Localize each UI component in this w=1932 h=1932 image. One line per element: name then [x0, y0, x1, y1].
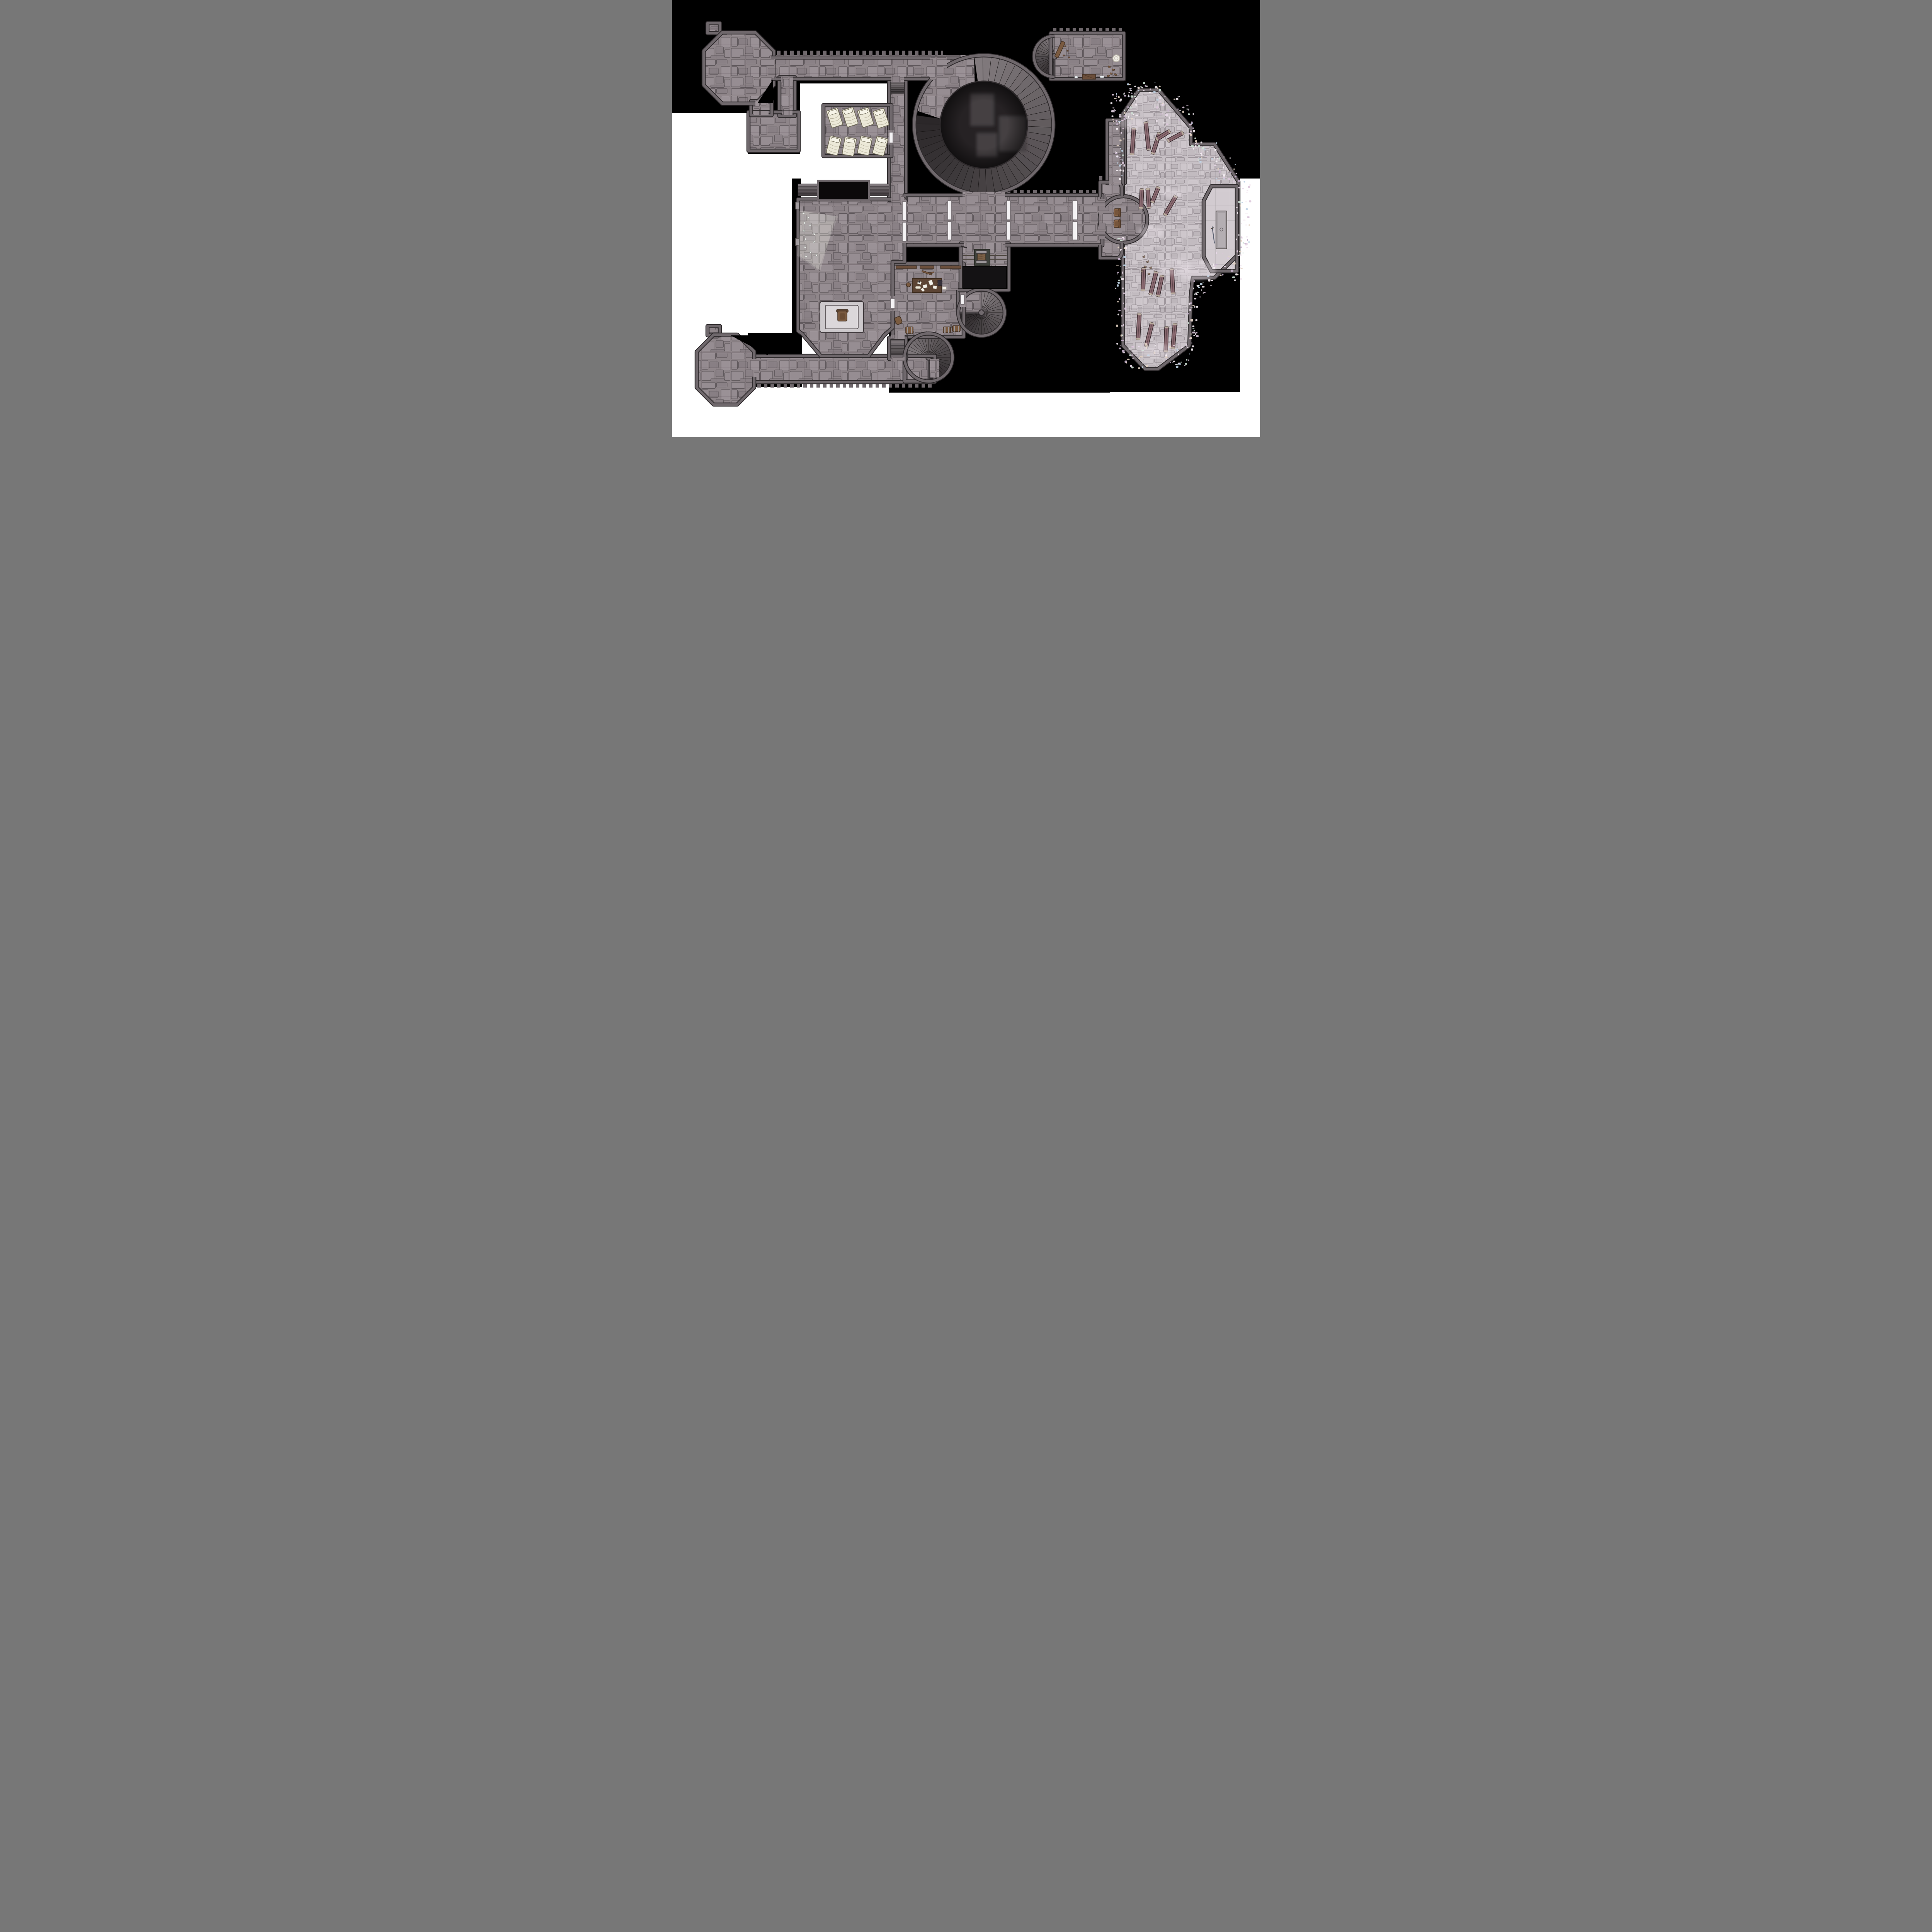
sparkle [1222, 274, 1224, 276]
sparkle [1120, 148, 1121, 149]
sparkle [1116, 93, 1117, 95]
sparkle [1247, 239, 1248, 241]
sparkle [1177, 349, 1178, 351]
glass-shard [804, 222, 805, 224]
balcony-opening [818, 181, 869, 200]
sparkle [1115, 288, 1116, 289]
sparkle [1194, 293, 1195, 295]
sparkle [1191, 349, 1193, 351]
sparkle [1188, 360, 1189, 361]
sparkle [1227, 169, 1228, 171]
sparkle [1195, 140, 1197, 142]
sparkle [1197, 143, 1199, 145]
sparkle [1215, 264, 1218, 265]
sparkle [1155, 86, 1158, 88]
sparkle [1192, 128, 1194, 129]
sparkle [1124, 308, 1127, 310]
sparkle [1216, 160, 1218, 162]
sparkle [1173, 361, 1175, 362]
sparkle [1156, 99, 1158, 100]
sparkle [1238, 201, 1241, 203]
door-leaf-gray [796, 202, 799, 209]
sparkle [1235, 274, 1238, 276]
sparkle [1119, 116, 1121, 117]
map-svg [672, 0, 1260, 437]
sparkle [1130, 365, 1132, 367]
doorway-patch-grid [964, 241, 1005, 248]
chest [906, 327, 913, 333]
sparkle [1243, 242, 1244, 243]
sparkle [1143, 82, 1145, 84]
sparkle [1162, 113, 1163, 114]
sparkle [1122, 237, 1124, 238]
pew-cap [1130, 153, 1134, 155]
sparkle [1116, 170, 1118, 171]
sparkle [1156, 106, 1158, 108]
sparkle [1132, 354, 1134, 354]
chest-band [958, 326, 959, 332]
sparkle [1129, 88, 1132, 89]
sparkle [1214, 149, 1216, 151]
step-ledge [798, 193, 819, 196]
sparkle [1179, 96, 1180, 97]
sparkle [1146, 365, 1148, 367]
sparkle [1240, 267, 1241, 268]
doorway-patch-grid [891, 77, 904, 82]
sparkle [1138, 367, 1140, 369]
wall-shelf [896, 266, 917, 269]
sparkle [1241, 240, 1242, 242]
stair-tread [889, 340, 906, 343]
sparkle [1230, 172, 1231, 173]
broken-pew-debris [1146, 261, 1149, 263]
sparkle [1121, 278, 1124, 280]
sparkle [1124, 248, 1126, 249]
sparkle [1194, 151, 1196, 153]
sparkle [1121, 175, 1123, 176]
sparkle [1129, 354, 1131, 356]
sparkle [1192, 332, 1195, 333]
sparkle [1201, 141, 1202, 143]
sparkle [1162, 103, 1163, 104]
sparkle [1142, 363, 1143, 364]
sparkle [1117, 282, 1119, 283]
sparkle [1119, 238, 1122, 239]
sparkle [1238, 234, 1239, 236]
sparkle [1129, 348, 1129, 350]
sparkle [1150, 88, 1151, 90]
sparkle [1114, 98, 1117, 99]
sparkle [1211, 280, 1213, 281]
sparkle [1242, 202, 1243, 203]
spiral-hub [979, 310, 984, 315]
sparkle [1122, 335, 1123, 336]
sparkle [1219, 170, 1221, 173]
sparkle [1186, 344, 1187, 347]
sparkle [1194, 330, 1195, 332]
scroll [915, 286, 921, 289]
chair-seat [1115, 221, 1119, 226]
sparkle [1168, 117, 1170, 119]
sparkle [1184, 365, 1185, 366]
chest [943, 327, 951, 333]
sparkle [1118, 310, 1121, 311]
sparkle [1235, 176, 1236, 178]
sparkle [1190, 308, 1193, 308]
sparkle [1146, 85, 1148, 87]
wood-bit [1063, 55, 1065, 56]
sparkle [1214, 165, 1217, 166]
sparkle [1238, 255, 1239, 256]
sparkle [1128, 109, 1129, 111]
sparkle [1202, 282, 1204, 283]
sparkle [1135, 115, 1138, 116]
sparkle [1163, 122, 1166, 124]
chest-band [944, 327, 946, 333]
sparkle [1117, 274, 1118, 274]
sparkle [1121, 334, 1122, 337]
sparkle [1194, 138, 1196, 139]
sparkle [1202, 147, 1204, 149]
sparkle [1155, 82, 1155, 83]
wood-bit [1067, 50, 1068, 51]
sparkle [1238, 187, 1240, 188]
sparkle [1123, 164, 1125, 167]
sparkle [1195, 146, 1197, 147]
sparkle [1120, 99, 1122, 100]
sparkle [1122, 155, 1124, 156]
sparkle [1196, 332, 1197, 334]
sparkle [1193, 335, 1195, 336]
door-leaf-white [1072, 201, 1077, 220]
sparkle [1192, 325, 1194, 327]
winch-plate [976, 251, 987, 253]
sparkle [1186, 105, 1189, 106]
pew-cap [1140, 189, 1144, 190]
sparkle [1194, 298, 1196, 299]
sparkle [1140, 356, 1143, 358]
pew-cap [1141, 289, 1145, 291]
sparkle [1192, 305, 1194, 306]
sparkle [1177, 344, 1179, 345]
sparkle [1241, 223, 1242, 224]
sparkle [1224, 266, 1226, 267]
wall-shelf [940, 266, 961, 269]
sparkle [1135, 103, 1137, 105]
chair-seat [1115, 210, 1119, 215]
sparkle [1123, 324, 1124, 327]
sparkle [1191, 343, 1192, 344]
sparkle [1230, 267, 1232, 268]
sparkle [1133, 114, 1134, 115]
floor-glow-patch [1162, 188, 1182, 198]
sparkle [1223, 156, 1225, 157]
battle-map: stone-keep-floorplan-battlemap [672, 0, 1260, 437]
sparkle [1179, 119, 1180, 121]
sparkle [1211, 158, 1213, 160]
sparkle [1111, 110, 1114, 112]
sparkle [1159, 101, 1161, 102]
sparkle [1121, 315, 1122, 317]
doorway-patch-grid [930, 57, 947, 80]
sparkle [1207, 151, 1207, 152]
sparkle [1121, 340, 1124, 341]
sparkle [1210, 285, 1211, 286]
sparkle [1201, 152, 1202, 153]
sparkle [1181, 347, 1184, 348]
sparkle [1173, 345, 1175, 346]
paper [942, 287, 946, 289]
paper [933, 286, 937, 289]
sparkle [1114, 111, 1115, 112]
pew-cap [1136, 338, 1140, 340]
sparkle [1175, 364, 1177, 365]
sparkle [1116, 325, 1118, 327]
sparkle [1115, 151, 1116, 153]
sparkle [1178, 96, 1179, 98]
sparkle [1122, 350, 1124, 352]
sparkle [1168, 109, 1169, 111]
sparkle [1188, 109, 1189, 111]
door-leaf-white [948, 201, 952, 220]
sparkle [1240, 247, 1242, 248]
sparkle [1118, 258, 1120, 260]
sparkle [1117, 145, 1119, 146]
broken-pew-debris [1141, 270, 1143, 272]
sparkle [1122, 170, 1124, 172]
sparkle [1131, 346, 1134, 348]
floor-glow-patch [1139, 226, 1163, 238]
sparkle [1192, 345, 1194, 347]
sparkle [1118, 96, 1120, 98]
sparkle [1196, 306, 1198, 308]
sparkle [1172, 362, 1173, 363]
sparkle [1135, 98, 1138, 100]
sparkle [1236, 250, 1238, 253]
sparkle [1112, 119, 1114, 119]
sparkle [1180, 362, 1182, 363]
sparkle [1247, 236, 1248, 238]
stair-tread [891, 89, 905, 91]
sparkle [1199, 161, 1201, 163]
glass-shard [803, 230, 805, 231]
sparkle [1242, 252, 1243, 253]
sparkle [1115, 153, 1117, 154]
sparkle [1192, 328, 1194, 329]
stool [906, 283, 911, 287]
sparkle [1179, 110, 1181, 111]
pew-cap [1142, 268, 1146, 269]
sparkle [1179, 363, 1181, 364]
sparkle [1199, 158, 1201, 159]
sparkle [1216, 252, 1217, 254]
book [938, 280, 942, 286]
sparkle [1132, 358, 1134, 359]
sparkle [1117, 314, 1119, 316]
sparkle [1170, 114, 1170, 116]
stair-tread [891, 92, 905, 94]
sparkle [1113, 121, 1114, 122]
sparkle [1217, 158, 1218, 158]
door-leaf-white [948, 221, 952, 240]
chest-band [954, 326, 955, 332]
sparkle [1203, 292, 1205, 293]
sparkle [1249, 200, 1252, 202]
sparkle [1119, 160, 1122, 160]
sparkle [1218, 168, 1219, 170]
sparkle [1165, 114, 1168, 116]
stair-tread [891, 87, 905, 89]
sparkle [1124, 115, 1126, 116]
sparkle [1239, 254, 1242, 255]
sparkle [1188, 113, 1190, 115]
door-leaf-white [961, 294, 964, 304]
sparkle [1131, 355, 1133, 356]
sparkle [1121, 276, 1122, 278]
sparkle [1246, 247, 1248, 248]
sparkle [1249, 184, 1251, 186]
ink-pot [918, 281, 920, 282]
sparkle [1170, 362, 1171, 363]
door-leaf-white [891, 298, 895, 308]
sparkle [1245, 224, 1247, 226]
sparkle [1237, 212, 1238, 214]
step-ledge [798, 187, 819, 190]
sparkle [1122, 272, 1123, 274]
sparkle [1240, 205, 1241, 207]
doorway-patch-grid [753, 111, 769, 115]
door-leaf-white [902, 222, 906, 241]
sparkle [1229, 158, 1231, 159]
sparkle [1124, 110, 1125, 111]
chest-band [907, 327, 908, 333]
sparkle [1190, 319, 1193, 321]
sparkle [1234, 279, 1236, 281]
sparkle [1245, 213, 1248, 214]
sparkle [1189, 128, 1189, 129]
floor-glow-patch [1120, 118, 1143, 129]
sparkle [1178, 354, 1179, 355]
sparkle [1185, 363, 1187, 365]
pew-cap [1171, 293, 1175, 294]
sparkle [1176, 98, 1179, 100]
sparkle [1198, 287, 1200, 288]
door-leaf-white [1072, 221, 1077, 240]
shaft-pit-grid [963, 266, 1007, 289]
sparkle [1233, 168, 1235, 170]
sparkle [1156, 120, 1157, 122]
sparkle [1192, 122, 1193, 124]
sparkle [1243, 181, 1245, 183]
chair-back [1119, 219, 1121, 228]
broken-pew-debris [1144, 266, 1146, 267]
doorway-patch-grid [752, 359, 757, 377]
sparkle [1232, 276, 1235, 278]
wood-debris [1110, 73, 1112, 75]
sparkle [1117, 301, 1119, 302]
sparkle [1116, 343, 1118, 344]
sparkle [1198, 145, 1200, 147]
step-ledge [868, 193, 889, 196]
sparkle [1119, 298, 1120, 300]
sparkle [1182, 107, 1184, 108]
sparkle [1116, 123, 1118, 125]
sparkle [1162, 104, 1164, 106]
sparkle [1120, 240, 1122, 241]
sparkle [1116, 120, 1118, 122]
sparkle [1119, 114, 1121, 116]
pew-cap [1146, 188, 1150, 190]
sparkle [1190, 302, 1192, 304]
sparkle [1216, 178, 1218, 179]
sparkle [1134, 86, 1136, 87]
sparkle [1173, 99, 1175, 100]
sparkle [1165, 359, 1166, 361]
sparkle [1116, 155, 1118, 157]
sparkle [1236, 238, 1237, 240]
wood-bit [1068, 57, 1070, 58]
sparkle [1189, 353, 1190, 354]
sparkle [1122, 352, 1125, 353]
sparkle [1120, 266, 1121, 267]
sparkle [1131, 93, 1133, 94]
sparkle [1131, 95, 1133, 98]
pew-cap [1165, 327, 1168, 328]
doorway-patch-grid [782, 111, 793, 115]
sparkle [1143, 90, 1145, 91]
sparkle [1195, 293, 1197, 294]
sparkle [1223, 167, 1224, 168]
sparkle [1238, 180, 1240, 182]
sparkle [1190, 131, 1192, 132]
doorway-patch-grid [891, 335, 905, 339]
sparkle [1248, 241, 1250, 243]
sparkle [1128, 95, 1129, 97]
sparkle [1196, 335, 1199, 337]
sparkle [1208, 279, 1211, 282]
sparkle [1111, 102, 1112, 104]
sparkle [1153, 91, 1156, 93]
sparkle [1118, 280, 1120, 281]
doorway-patch-grid [963, 192, 1005, 199]
sparkle [1195, 333, 1196, 335]
sparkle [1240, 278, 1242, 280]
sparkle [1193, 148, 1194, 150]
sparkle [1233, 262, 1236, 265]
sparkle [1249, 224, 1250, 226]
sparkle [1121, 325, 1122, 327]
sparkle [1122, 287, 1124, 289]
sparkle [1137, 87, 1139, 88]
door-leaf-white [902, 201, 906, 221]
sparkle [1246, 192, 1248, 193]
sparkle [1121, 132, 1122, 134]
door-leaf-white [1007, 221, 1010, 240]
sparkle [1182, 111, 1184, 113]
sparkle [1177, 109, 1179, 110]
sparkle [1121, 150, 1123, 152]
sparkle [1134, 93, 1135, 94]
step-ledge [868, 187, 889, 190]
altar-table-top [1218, 213, 1225, 247]
sparkle [1127, 359, 1129, 360]
sparkle [1189, 309, 1191, 311]
pew-cap [1139, 207, 1143, 209]
sparkle [1197, 292, 1199, 293]
sparkle [1134, 96, 1136, 97]
sparkle [1122, 159, 1122, 162]
sparkle [1122, 162, 1124, 164]
